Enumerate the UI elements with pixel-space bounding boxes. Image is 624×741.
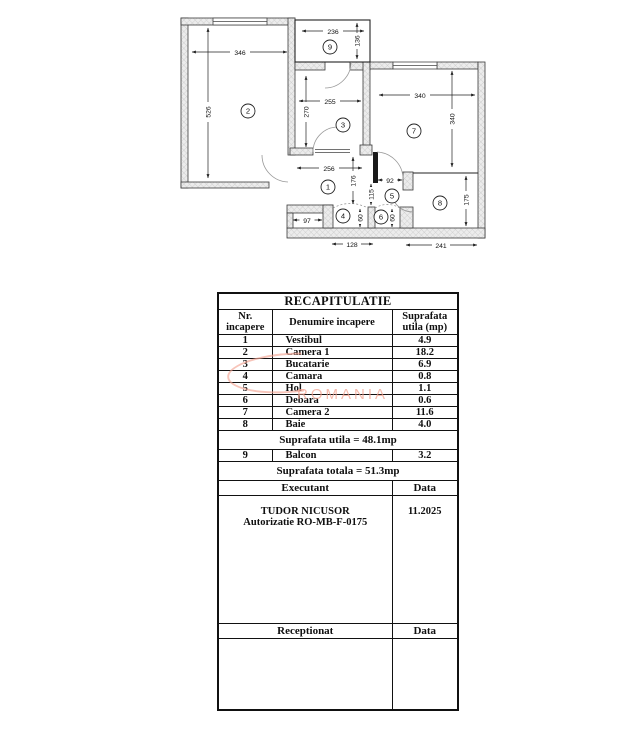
executant-signature-row: TUDOR NICUSOR Autorizatie RO-MB-F-0175 1… bbox=[218, 496, 458, 624]
floor-plan: 346 526 236 136 255 270 340 340 256 176 … bbox=[0, 0, 624, 262]
svg-text:9: 9 bbox=[328, 43, 332, 52]
cell-nr: 2 bbox=[218, 347, 272, 359]
subtotal-row: Suprafata utila = 48.1mp bbox=[218, 431, 458, 450]
cell-nr: 3 bbox=[218, 359, 272, 371]
windows bbox=[213, 18, 437, 153]
svg-text:241: 241 bbox=[435, 243, 447, 250]
executant-date: 11.2025 bbox=[393, 496, 458, 517]
room-7-label: 7 bbox=[407, 124, 421, 138]
dim-136: 136 bbox=[353, 23, 362, 59]
svg-text:1: 1 bbox=[326, 183, 330, 192]
svg-text:4: 4 bbox=[341, 212, 345, 221]
table-row: 6 Debara 0.6 bbox=[218, 395, 458, 407]
svg-text:128: 128 bbox=[346, 242, 358, 249]
svg-text:255: 255 bbox=[324, 99, 336, 106]
cell-nr: 6 bbox=[218, 395, 272, 407]
svg-text:136: 136 bbox=[355, 35, 362, 47]
dim-92: 92 bbox=[378, 176, 402, 185]
recap-table: RECAPITULATIE Nr. incapere Denumire inca… bbox=[217, 292, 459, 711]
svg-text:176: 176 bbox=[351, 175, 358, 187]
dim-526: 526 bbox=[204, 28, 213, 178]
cell-nr: 5 bbox=[218, 383, 272, 395]
cell-name: Debara bbox=[272, 395, 392, 407]
header-suprafata: Suprafata utila (mp) bbox=[392, 310, 458, 335]
svg-text:97: 97 bbox=[303, 218, 311, 225]
cell-nr: 4 bbox=[218, 371, 272, 383]
dim-128: 128 bbox=[332, 240, 373, 249]
cell-area: 4.0 bbox=[392, 419, 458, 431]
svg-text:3: 3 bbox=[341, 121, 345, 130]
balcony-row: 9 Balcon 3.2 bbox=[218, 450, 458, 462]
table-row: 1 Vestibul 4.9 bbox=[218, 335, 458, 347]
room-5-label: 5 bbox=[385, 189, 399, 203]
svg-text:346: 346 bbox=[234, 50, 246, 57]
cell-area: 0.6 bbox=[392, 395, 458, 407]
recap-table-container: RECAPITULATIE Nr. incapere Denumire inca… bbox=[217, 292, 459, 711]
dim-60-debara: 60 bbox=[388, 209, 397, 227]
room-2-label: 2 bbox=[241, 104, 255, 118]
svg-text:8: 8 bbox=[438, 199, 442, 208]
cell-name: Bucatarie bbox=[272, 359, 392, 371]
svg-text:256: 256 bbox=[323, 166, 335, 173]
dim-346: 346 bbox=[192, 48, 287, 57]
receptionat-cell bbox=[218, 639, 392, 711]
room-6-label: 6 bbox=[374, 210, 388, 224]
cell-name: Hol bbox=[272, 383, 392, 395]
dim-176: 176 bbox=[349, 157, 358, 204]
cell-name: Baie bbox=[272, 419, 392, 431]
cell-area: 6.9 bbox=[392, 359, 458, 371]
cell-area: 4.9 bbox=[392, 335, 458, 347]
receptionat-date-cell bbox=[392, 639, 458, 711]
svg-text:60: 60 bbox=[358, 214, 365, 222]
svg-text:5: 5 bbox=[390, 192, 394, 201]
total-row: Suprafata totala = 51.3mp bbox=[218, 462, 458, 481]
table-row: 5 Hol 1.1 bbox=[218, 383, 458, 395]
header-nr: Nr. incapere bbox=[218, 310, 272, 335]
dim-340-h: 340 bbox=[379, 91, 475, 100]
cell-area: 1.1 bbox=[392, 383, 458, 395]
svg-text:2: 2 bbox=[246, 107, 250, 116]
room-9-label: 9 bbox=[323, 40, 337, 54]
executant-label: Executant bbox=[218, 481, 392, 496]
cell-nr: 7 bbox=[218, 407, 272, 419]
cell-name: Camara bbox=[272, 371, 392, 383]
cell-area: 11.6 bbox=[392, 407, 458, 419]
executant-date-cell: 11.2025 bbox=[392, 496, 458, 624]
cell-name: Balcon bbox=[272, 450, 392, 462]
svg-text:7: 7 bbox=[412, 127, 416, 136]
dim-97: 97 bbox=[293, 216, 322, 225]
table-row: 8 Baie 4.0 bbox=[218, 419, 458, 431]
cell-nr: 1 bbox=[218, 335, 272, 347]
svg-text:340: 340 bbox=[450, 113, 457, 125]
svg-text:115: 115 bbox=[369, 189, 376, 200]
dim-175: 175 bbox=[462, 176, 471, 226]
table-header-row: Nr. incapere Denumire incapere Suprafata… bbox=[218, 310, 458, 335]
executant-name: TUDOR NICUSOR bbox=[219, 496, 392, 517]
cell-name: Camera 2 bbox=[272, 407, 392, 419]
receptionat-signature-row bbox=[218, 639, 458, 711]
svg-text:340: 340 bbox=[414, 93, 426, 100]
table-row: 3 Bucatarie 6.9 bbox=[218, 359, 458, 371]
receptionat-data-label: Data bbox=[392, 624, 458, 639]
thin-walls bbox=[295, 20, 478, 173]
dimensions: 346 526 236 136 255 270 340 340 256 176 … bbox=[192, 23, 477, 250]
executant-data-label: Data bbox=[392, 481, 458, 496]
cell-area: 18.2 bbox=[392, 347, 458, 359]
table-title: RECAPITULATIE bbox=[218, 293, 458, 310]
dim-60-camara: 60 bbox=[356, 209, 365, 227]
executant-cell: TUDOR NICUSOR Autorizatie RO-MB-F-0175 bbox=[218, 496, 392, 624]
svg-text:270: 270 bbox=[304, 106, 311, 118]
svg-text:526: 526 bbox=[206, 106, 213, 118]
dim-340-v: 340 bbox=[448, 71, 457, 167]
cell-nr: 9 bbox=[218, 450, 272, 462]
room-4-label: 4 bbox=[336, 209, 350, 223]
cell-area: 0.8 bbox=[392, 371, 458, 383]
svg-text:175: 175 bbox=[464, 194, 471, 206]
room-8-label: 8 bbox=[433, 196, 447, 210]
svg-text:6: 6 bbox=[379, 213, 383, 222]
table-row: 2 Camera 1 18.2 bbox=[218, 347, 458, 359]
header-denumire: Denumire incapere bbox=[272, 310, 392, 335]
executant-header-row: Executant Data bbox=[218, 481, 458, 496]
table-row: 4 Camara 0.8 bbox=[218, 371, 458, 383]
table-row: 7 Camera 2 11.6 bbox=[218, 407, 458, 419]
dim-115: 115 bbox=[367, 184, 376, 205]
receptionat-label: Receptionat bbox=[218, 624, 392, 639]
executant-authorization: Autorizatie RO-MB-F-0175 bbox=[219, 517, 392, 528]
dim-270: 270 bbox=[302, 76, 311, 147]
cell-name: Camera 1 bbox=[272, 347, 392, 359]
svg-text:60: 60 bbox=[390, 214, 397, 222]
subtotal-text: Suprafata utila = 48.1mp bbox=[218, 431, 458, 450]
svg-text:236: 236 bbox=[327, 29, 339, 36]
cell-name: Vestibul bbox=[272, 335, 392, 347]
total-text: Suprafata totala = 51.3mp bbox=[218, 462, 458, 481]
cell-nr: 8 bbox=[218, 419, 272, 431]
cell-area: 3.2 bbox=[392, 450, 458, 462]
room-3-label: 3 bbox=[336, 118, 350, 132]
room-1-label: 1 bbox=[321, 180, 335, 194]
receptionat-header-row: Receptionat Data bbox=[218, 624, 458, 639]
svg-text:92: 92 bbox=[386, 178, 394, 185]
table-title-row: RECAPITULATIE bbox=[218, 293, 458, 310]
dim-241: 241 bbox=[406, 241, 477, 250]
